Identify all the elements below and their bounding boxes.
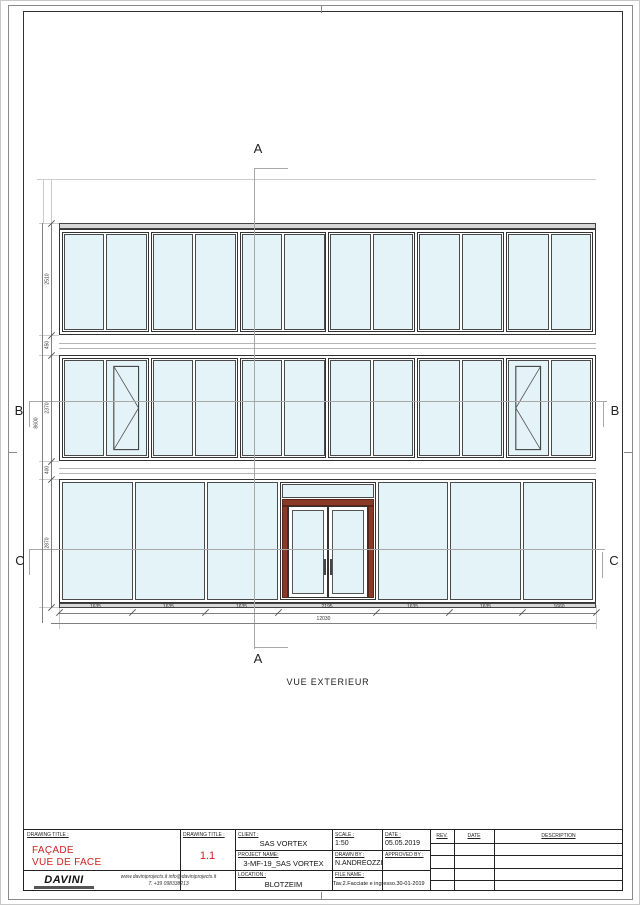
- title-block: DRAWING TITLE : FAÇADE VUE DE FACE DRAWI…: [23, 829, 623, 891]
- rev-row-divider: [430, 855, 623, 856]
- company-logo-tagline-bar: [34, 886, 94, 889]
- glazing-panel: [551, 234, 591, 330]
- dimension-value: 450: [46, 341, 51, 349]
- rev-row-divider: [430, 868, 623, 869]
- drawn-by-value: N.ANDREOZZI: [335, 860, 382, 867]
- section-marker-b-left: B: [9, 403, 29, 418]
- facade-module: [62, 358, 149, 458]
- glazing-panel: [195, 360, 235, 456]
- date-label: DATE :: [385, 832, 401, 838]
- file-name-value: Tav.2.Facciate e ingresso.30-01-2019: [333, 881, 429, 887]
- contact-line1: www.daviniprojects.it info@daviniproject…: [102, 874, 235, 881]
- dimension-value: 1635: [205, 605, 278, 610]
- glazing-panel: [508, 234, 548, 330]
- door-handle: [330, 559, 332, 575]
- glazing-panel: [62, 482, 133, 600]
- section-marker-c-left: C: [10, 553, 30, 568]
- glazing-panel: [207, 482, 278, 600]
- rev-header: REV.: [430, 833, 454, 839]
- file-name-label: FILE NAME :: [335, 872, 364, 878]
- glazing-panel: [135, 482, 206, 600]
- glazing-panel: [462, 234, 502, 330]
- facade-module: [151, 358, 238, 458]
- door-frame-jamb: [368, 506, 374, 598]
- glazing-panel: [106, 234, 146, 330]
- door-body: [282, 506, 374, 598]
- client-label: CLIENT :: [238, 832, 258, 838]
- title-block-divider: [332, 870, 430, 871]
- door-leaf-left: [288, 506, 328, 598]
- facade-module: [417, 358, 504, 458]
- door-transom: [282, 484, 374, 498]
- facade-module: [417, 232, 504, 332]
- location-value: BLOTZEIM: [235, 880, 332, 889]
- view-caption: VUE EXTERIEUR: [228, 677, 428, 687]
- center-mark-right: [624, 452, 633, 453]
- location-label: LOCATION :: [238, 872, 266, 878]
- dimension-value: 2370: [46, 402, 51, 413]
- dimension-value: 1635: [376, 605, 449, 610]
- glazing-panel: [419, 360, 459, 456]
- dimension-value: 1635: [449, 605, 522, 610]
- dimension-line: [51, 223, 52, 607]
- company-logo: DAVINI: [28, 874, 100, 886]
- glazing-panel: [551, 360, 591, 456]
- section-line-b: [29, 401, 607, 402]
- sheet-number-label: DRAWING TITLE :: [183, 832, 225, 838]
- construction-line-top: [37, 179, 596, 180]
- center-mark-left: [8, 452, 17, 453]
- spandrel-strip: [59, 335, 596, 355]
- drawing-sheet: A A B B C C 1635163516352195163516351660…: [0, 0, 640, 905]
- title-block-divider: [235, 850, 332, 851]
- glazing-panel: [153, 360, 193, 456]
- dimension-value: 400: [46, 466, 51, 474]
- extension-line: [43, 179, 44, 223]
- glazing-panel: [330, 360, 370, 456]
- dimension-value: 2870: [46, 537, 51, 548]
- facade-module: [506, 358, 593, 458]
- extension-line: [51, 179, 52, 223]
- glazing-panel: [284, 360, 324, 456]
- rev-date-header: DATE: [454, 833, 494, 839]
- section-bracket: [603, 401, 604, 427]
- rev-row-divider: [430, 843, 623, 844]
- drawing-title-line2: VUE DE FACE: [32, 857, 101, 868]
- door-leaf-right: [328, 506, 368, 598]
- openable-window: [508, 360, 548, 456]
- scale-value: 1:50: [335, 840, 349, 847]
- facade-module: [240, 232, 327, 332]
- door-frame-head: [282, 499, 374, 506]
- glazing-band-bottom: [59, 479, 596, 603]
- glazing-panel: [419, 234, 459, 330]
- section-bracket: [29, 401, 30, 427]
- drawing-title-line1: FAÇADE: [32, 845, 74, 856]
- title-block-divider: [235, 870, 332, 871]
- glazing-band-middle: [59, 355, 596, 461]
- drawn-by-label: DRAWN BY :: [335, 852, 364, 858]
- rev-row-divider: [430, 880, 623, 881]
- facade-module: [328, 358, 415, 458]
- rev-table-divider: [494, 830, 495, 890]
- entrance-door: [280, 482, 376, 600]
- facade-module: [62, 232, 149, 332]
- dimension-line: [59, 613, 596, 614]
- openable-window: [106, 360, 146, 456]
- glazing-panel: [523, 482, 594, 600]
- section-line-c: [29, 549, 605, 550]
- facade-module: [240, 358, 327, 458]
- door-glass: [292, 510, 324, 594]
- section-marker-a-bottom: A: [248, 651, 268, 666]
- door-glass: [332, 510, 364, 594]
- dimension-line-left-total: 8600: [35, 223, 45, 623]
- title-block-divider: [430, 830, 431, 890]
- dimension-total-value: 12030: [51, 617, 596, 622]
- section-marker-a-top: A: [248, 141, 268, 156]
- openable-sash-symbol: [107, 361, 145, 455]
- section-bracket: [254, 647, 288, 648]
- glazing-panel: [450, 482, 521, 600]
- glazing-panel: [242, 360, 282, 456]
- glazing-band-top: [59, 229, 596, 335]
- facade-module: [151, 232, 238, 332]
- glazing-panel: [195, 234, 235, 330]
- sheet-number: 1.1: [180, 850, 235, 862]
- client-value: SAS VORTEX: [235, 839, 332, 848]
- dimension-line-bottom-total: 12030: [51, 617, 596, 629]
- section-marker-b-right: B: [605, 403, 625, 418]
- title-block-divider: [24, 870, 235, 871]
- contact-line2: T. +39 098338213: [102, 881, 235, 888]
- project-label: PROJECT NAME:: [238, 852, 278, 858]
- rev-description-header: DESCRIPTION: [494, 833, 623, 839]
- drawing-title-label: DRAWING TITLE :: [27, 832, 69, 838]
- dimension-line-left: 251045023704002870: [45, 223, 57, 607]
- center-mark-bottom: [321, 892, 322, 900]
- glazing-panel: [378, 482, 449, 600]
- section-bracket: [254, 168, 288, 169]
- section-line-a: [254, 168, 255, 649]
- approved-by-label: APPROVED BY :: [385, 852, 424, 858]
- section-marker-c-right: C: [604, 553, 624, 568]
- scale-label: SCALE :: [335, 832, 354, 838]
- door-handle: [324, 559, 326, 575]
- glazing-panel: [373, 360, 413, 456]
- glazing-panel: [64, 234, 104, 330]
- dimension-value: 1660: [522, 605, 596, 610]
- rev-table-divider: [454, 830, 455, 890]
- glazing-panel: [462, 360, 502, 456]
- dimension-value: 1635: [132, 605, 205, 610]
- glazing-panel: [153, 234, 193, 330]
- facade-module: [506, 232, 593, 332]
- dimension-value: 2195: [278, 605, 376, 610]
- facade-elevation: [59, 223, 596, 608]
- spandrel-strip: [59, 461, 596, 479]
- openable-sash-symbol: [509, 361, 547, 455]
- extension-line: [596, 605, 597, 629]
- glazing-panel: [64, 360, 104, 456]
- project-value: 3-MF-19_SAS VORTEX: [235, 859, 332, 868]
- facade-module: [328, 232, 415, 332]
- dimension-value: 2510: [46, 273, 51, 284]
- glazing-panel: [242, 234, 282, 330]
- section-bracket: [602, 552, 603, 578]
- date-value: 05.05.2019: [385, 840, 420, 847]
- dimension-total-value: 8600: [35, 417, 40, 428]
- company-contact: www.daviniprojects.it info@daviniproject…: [102, 874, 235, 888]
- glazing-panel: [373, 234, 413, 330]
- glazing-panel: [284, 234, 324, 330]
- center-mark-top: [321, 5, 322, 13]
- dimension-value: 1635: [59, 605, 132, 610]
- glazing-panel: [330, 234, 370, 330]
- title-block-divider: [332, 850, 430, 851]
